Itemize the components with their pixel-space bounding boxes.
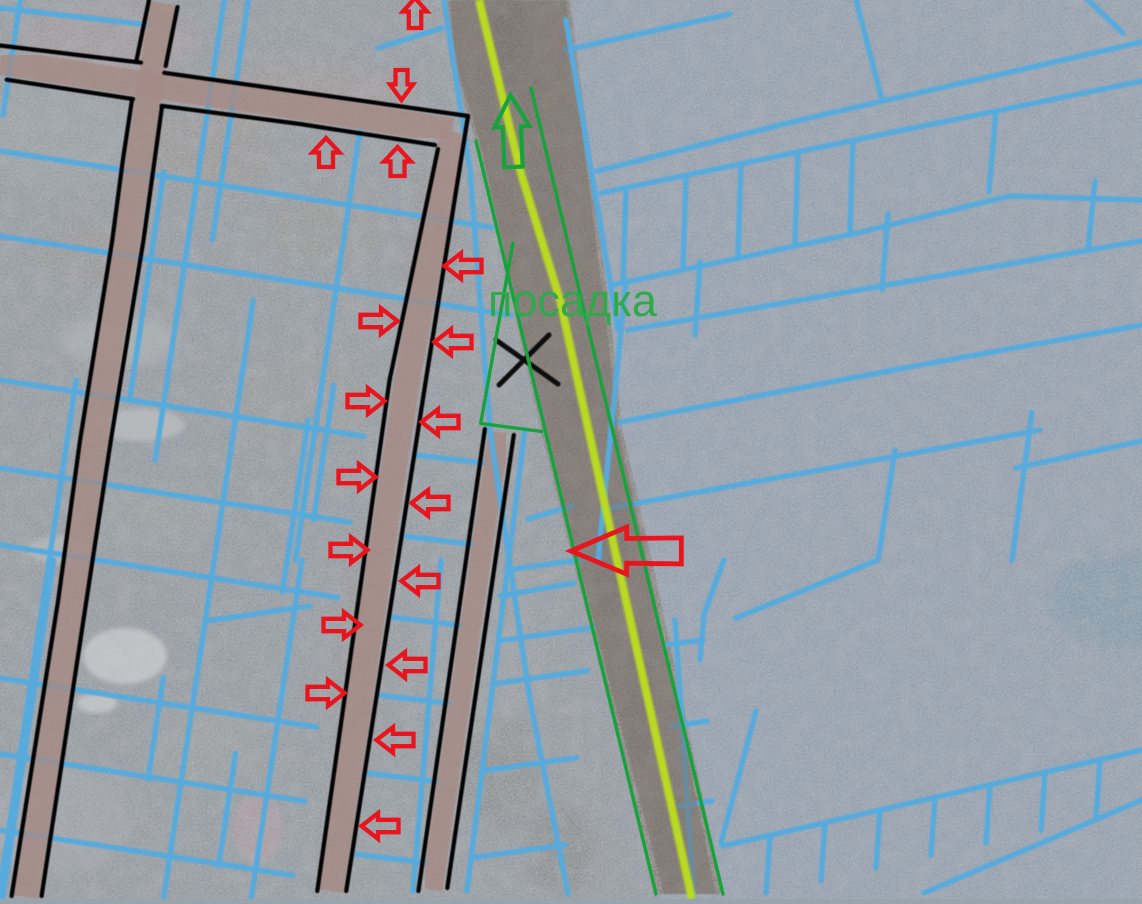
svg-text:посадка: посадка: [488, 275, 658, 326]
